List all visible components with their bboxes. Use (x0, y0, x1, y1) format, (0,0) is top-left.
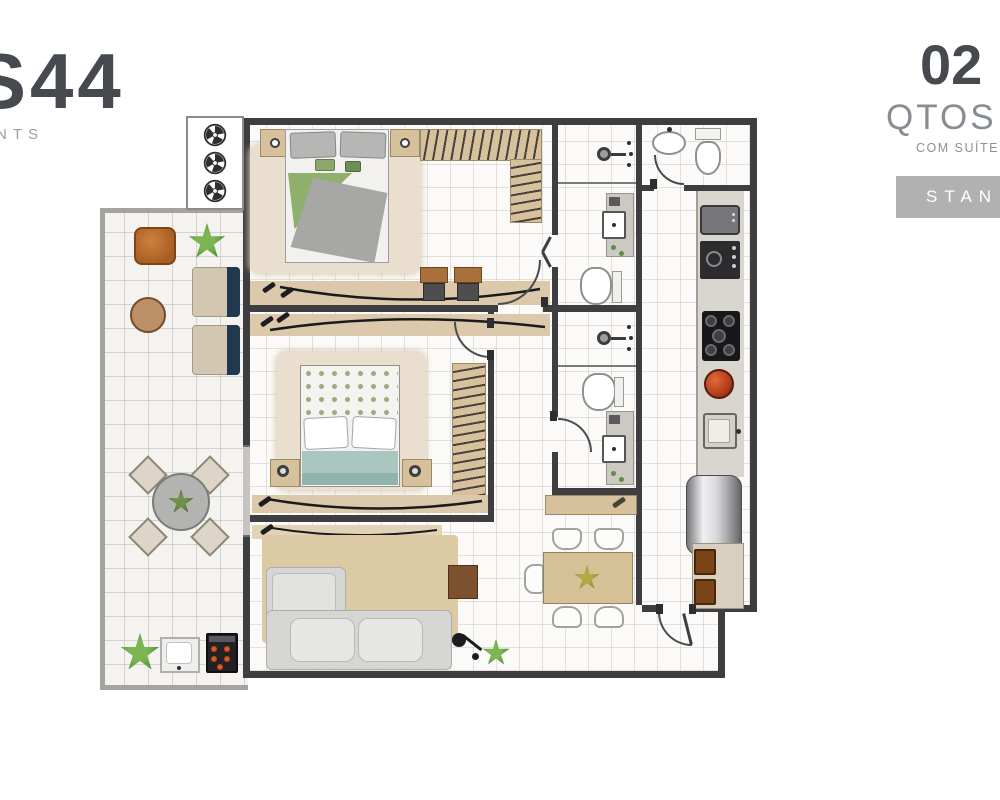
duvet-polkadot (302, 367, 398, 419)
wall-kitchen-left (636, 118, 642, 605)
oven-door (706, 251, 722, 267)
wall-top (243, 118, 757, 125)
faucet-icon (667, 127, 672, 132)
toilet-tank (695, 128, 721, 140)
bar-stool (694, 549, 716, 575)
appliance-dot (732, 213, 735, 216)
closet-top (420, 129, 542, 161)
shower-jet (629, 336, 633, 340)
coal-dot (217, 664, 223, 670)
oven-knob (732, 246, 736, 250)
plant-dot (619, 477, 624, 482)
faucet-icon (612, 447, 616, 451)
sink-lavabo (652, 131, 686, 155)
oven-knob (732, 255, 736, 259)
plant-dot (619, 251, 624, 256)
sliding-door-balcony (243, 445, 250, 537)
toilet-tank (612, 271, 622, 303)
page: S44 NTS 02 QTOS COM SUÍTE STAN (0, 0, 1000, 800)
stool (454, 267, 482, 283)
shower-divider (558, 365, 636, 367)
toilet (695, 141, 721, 175)
vanity-accessory (609, 197, 620, 206)
bedrooms-label: QTOS (886, 98, 997, 138)
faucet-icon (177, 666, 181, 670)
wall-bedroom2-bottom (250, 515, 494, 522)
wall-right (750, 118, 757, 612)
decor-bowl (704, 369, 734, 399)
stool (423, 283, 445, 301)
balcony-wall-bottom (100, 685, 248, 690)
brand-logo-subtext: NTS (0, 126, 44, 143)
lamp-icon (400, 138, 410, 148)
stool (457, 283, 479, 301)
burner-icon (723, 344, 735, 356)
fan-icon (203, 151, 227, 175)
toilet-tank (614, 377, 624, 407)
shower-jet (627, 325, 631, 329)
lamp-icon (277, 465, 289, 477)
side-table (448, 565, 478, 599)
balcony-sink (166, 642, 192, 664)
brand-logo-text: S44 (0, 36, 125, 127)
sofa-cushion (272, 573, 336, 615)
bed-runner (302, 451, 398, 475)
sofa-cushion (358, 618, 423, 662)
floorplan (100, 115, 760, 695)
door-hinge (689, 604, 696, 614)
dining-chair (594, 606, 624, 628)
wall-vestibule (718, 612, 725, 678)
door-hinge (487, 318, 494, 328)
vanity-accessory (609, 415, 620, 424)
wardrobe (452, 363, 486, 497)
shower-head-icon (597, 331, 611, 345)
cushion (345, 161, 361, 172)
wall-bath1-a (552, 118, 558, 235)
pillow (340, 131, 387, 159)
dining-chair (552, 606, 582, 628)
bedrooms-count: 02 (920, 32, 982, 97)
burner-icon (712, 329, 726, 343)
balcony-wall-left (100, 208, 105, 690)
wall-bath2-b (552, 452, 558, 488)
burner-icon (705, 344, 717, 356)
coal-dot (211, 646, 217, 652)
door-hinge (487, 350, 494, 360)
sofa-cushion (290, 618, 355, 662)
coal-dot (211, 656, 217, 662)
armchair-back (227, 325, 240, 375)
shower-jet (629, 152, 633, 156)
dining-chair (552, 528, 582, 550)
sink-basin (708, 419, 730, 443)
plan-type-badge: STAN (896, 176, 1000, 218)
lamp-icon (409, 465, 421, 477)
dining-chair (524, 564, 544, 594)
door-hinge (541, 297, 548, 307)
coal-dot (224, 646, 230, 652)
dining-chair (594, 528, 624, 550)
closet-side (510, 159, 542, 223)
shower-jet (627, 163, 631, 167)
round-side-table (130, 297, 166, 333)
burner-icon (723, 315, 735, 327)
toilet (580, 267, 612, 305)
door-hinge (550, 411, 557, 421)
shower-arm (611, 337, 626, 340)
burner-icon (705, 315, 717, 327)
shower-head-icon (597, 147, 611, 161)
door-hinge (650, 179, 657, 189)
wall-left (243, 118, 250, 678)
wall-bath2-bottom (552, 488, 642, 495)
bedrooms-note: COM SUÍTE (916, 141, 999, 155)
shower-divider (558, 182, 636, 184)
toilet (582, 373, 616, 411)
pillow (290, 131, 337, 159)
valance-bedroom2 (252, 495, 488, 513)
shower-arm (611, 153, 626, 156)
fan-icon (203, 179, 227, 203)
stool (420, 267, 448, 283)
wall-hall-b (488, 355, 494, 522)
faucet-icon (736, 429, 741, 434)
floor-lamp-base (472, 653, 479, 660)
desk-bedroom2 (250, 314, 550, 336)
plant-dot (611, 471, 616, 476)
balcony-table (134, 227, 176, 265)
shower-jet (627, 347, 631, 351)
oven-knob (732, 264, 736, 268)
plant-dot (611, 245, 616, 250)
wall-bath1-b (552, 267, 558, 312)
fan-icon (203, 123, 227, 147)
outside-mask (725, 612, 760, 682)
coal-dot (224, 656, 230, 662)
pillow (303, 416, 349, 450)
lamp-icon (270, 138, 280, 148)
faucet-icon (612, 223, 616, 227)
pillow (351, 416, 397, 450)
bar-stool (694, 579, 716, 605)
wall-bottom (243, 671, 725, 678)
grill-handle (209, 636, 235, 642)
shower-jet (627, 141, 631, 145)
bed-runner-edge (302, 473, 398, 485)
door-hinge (656, 604, 663, 614)
cushion (315, 159, 335, 171)
appliance-dot (732, 219, 735, 222)
armchair-back (227, 267, 240, 317)
